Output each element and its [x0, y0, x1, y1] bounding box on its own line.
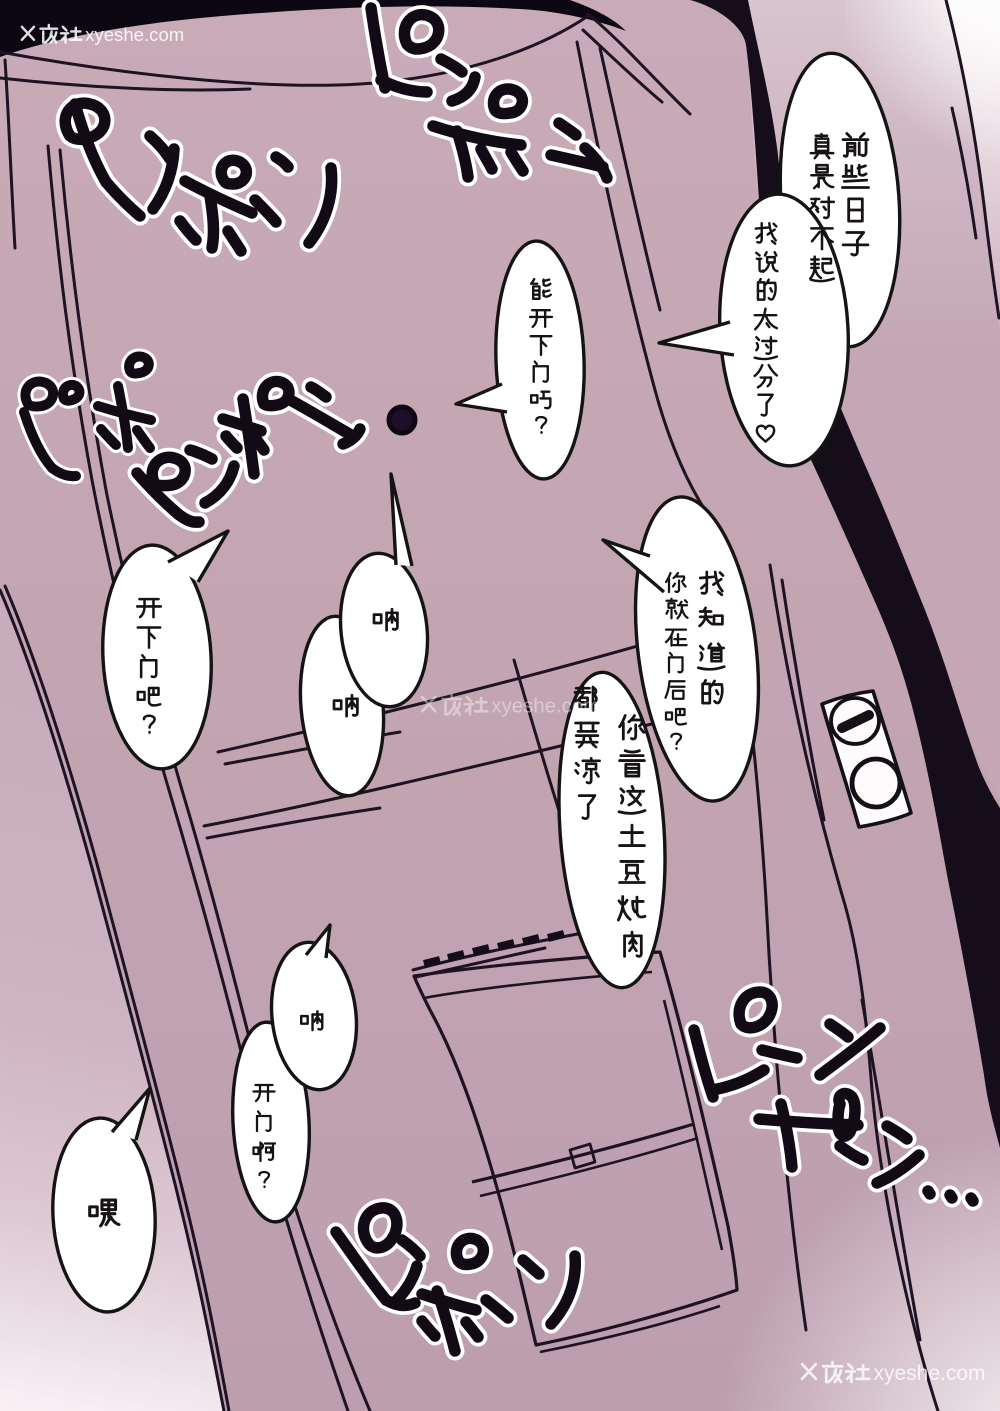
svg-text:xyeshe.com: xyeshe.com	[491, 695, 600, 717]
svg-text:xyeshe.com: xyeshe.com	[874, 1362, 986, 1385]
svg-text:xyeshe.com: xyeshe.com	[85, 24, 184, 45]
